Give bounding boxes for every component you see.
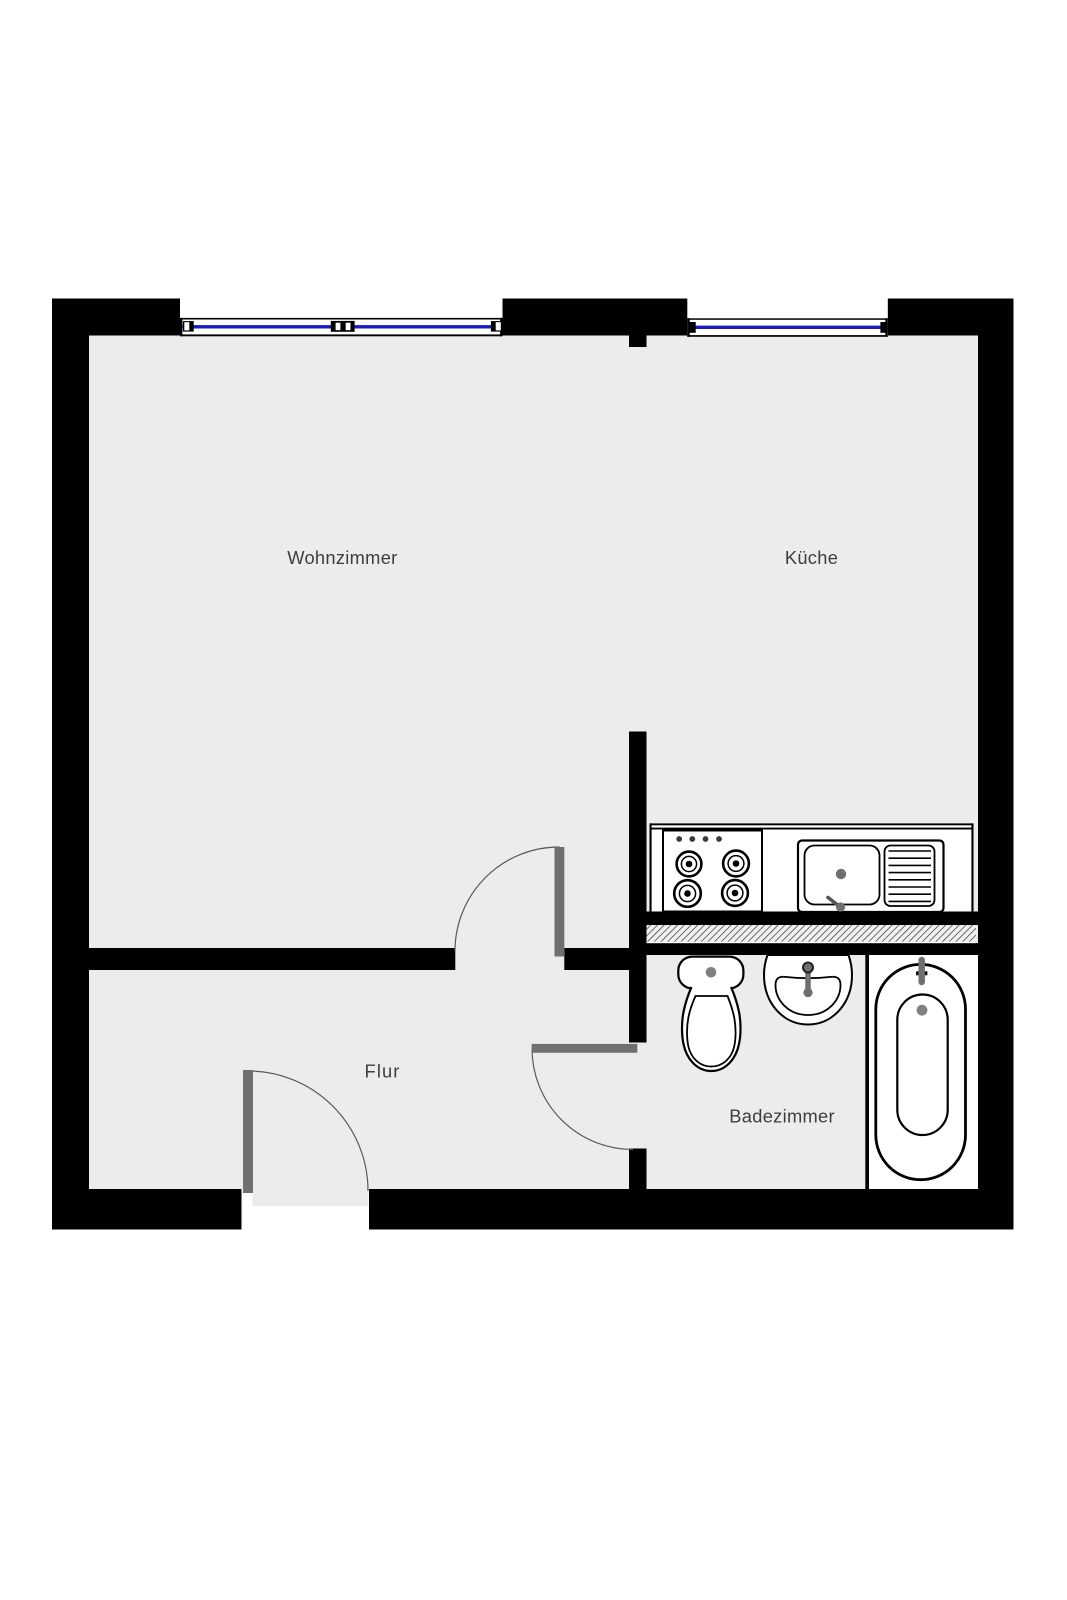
svg-text:Wohnzimmer: Wohnzimmer [287, 547, 397, 568]
svg-text:Badezimmer: Badezimmer [729, 1105, 835, 1126]
svg-text:Küche: Küche [785, 547, 838, 568]
svg-text:Flur: Flur [365, 1061, 401, 1082]
